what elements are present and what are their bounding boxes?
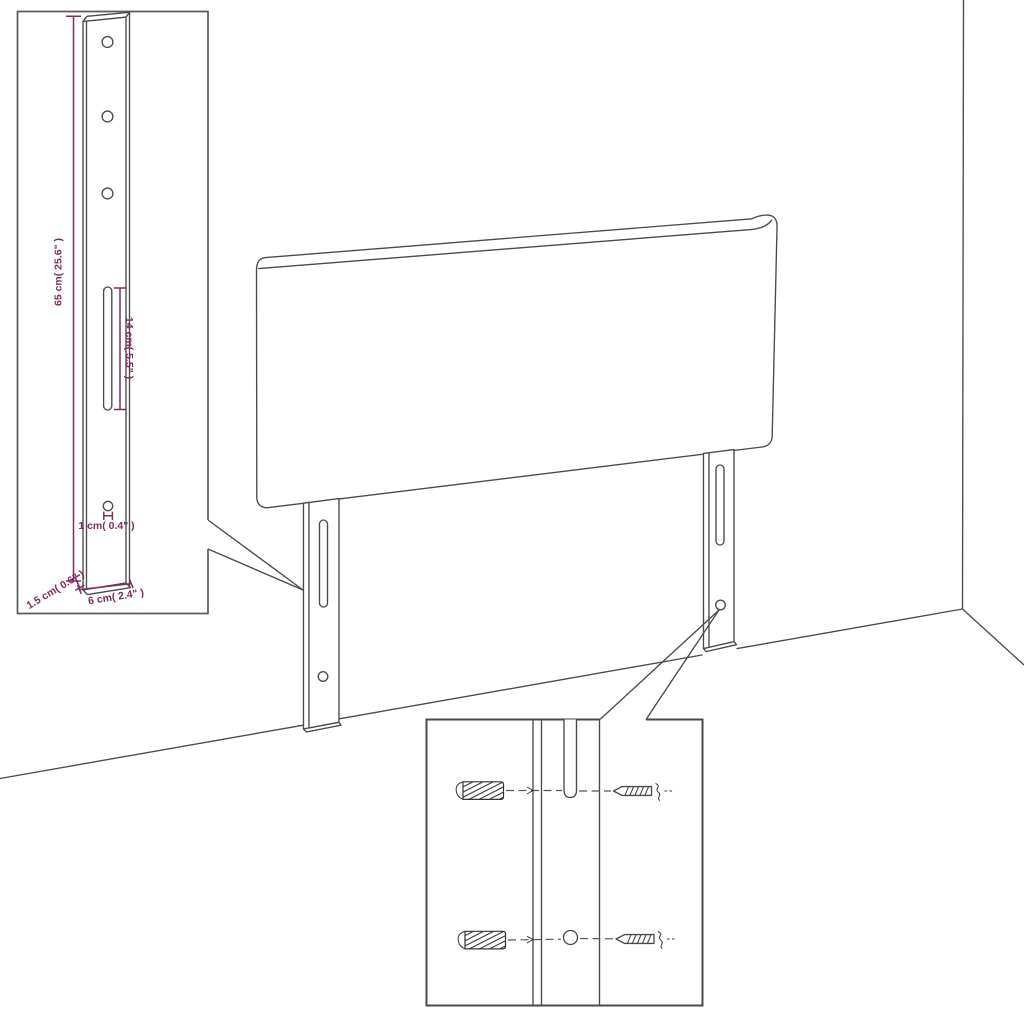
floor-line-left-c — [0, 725, 303, 778]
alignment-dashes — [508, 939, 561, 940]
bracket-slot — [104, 287, 112, 410]
bracket-hole-3 — [102, 188, 113, 199]
callout-line — [646, 610, 719, 720]
strip-hole — [564, 931, 578, 945]
floor-line-left-b — [340, 655, 702, 719]
diagram-canvas: 65 cm( 25.6" ) 14 cm( 5.5" ) 1 cm( 0.4" … — [0, 0, 1024, 1024]
bracket-hole-2 — [102, 111, 113, 122]
bracket-small-hole — [103, 501, 112, 510]
wall-corner-line — [963, 0, 964, 609]
strip-slot — [564, 720, 577, 798]
right-leg-hole — [716, 600, 726, 610]
floor-line-left-a — [737, 609, 963, 649]
left-leg-hole — [318, 672, 328, 682]
dim-label-hole-diameter: 1 cm( 0.4" ) — [78, 520, 134, 532]
headboard-outline — [257, 215, 778, 508]
headboard-panel — [257, 215, 778, 508]
floor-line-right — [963, 609, 1024, 665]
dim-label-leg-height: 65 cm( 25.6" ) — [53, 238, 65, 306]
callout-wedge-bottom — [600, 610, 719, 720]
wall-plug-icon — [465, 931, 506, 949]
right-leg-slot — [716, 465, 724, 545]
headboard-left-leg — [304, 499, 342, 732]
dim-label-slot-length: 14 cm( 5.5" ) — [123, 317, 135, 379]
wall-plug-icon — [463, 782, 504, 800]
bracket-dimension-inset: 65 cm( 25.6" ) 14 cm( 5.5" ) 1 cm( 0.4" … — [18, 12, 209, 614]
callout-line — [600, 610, 719, 720]
bracket-hole-1 — [102, 37, 113, 48]
headboard-diagram: 65 cm( 25.6" ) 14 cm( 5.5" ) 1 cm( 0.4" … — [0, 0, 1024, 1024]
left-leg-slot — [320, 520, 328, 607]
callout-wedge-top-left — [208, 520, 303, 590]
hardware-detail-inset — [427, 720, 703, 1006]
headboard-right-leg — [704, 450, 737, 652]
